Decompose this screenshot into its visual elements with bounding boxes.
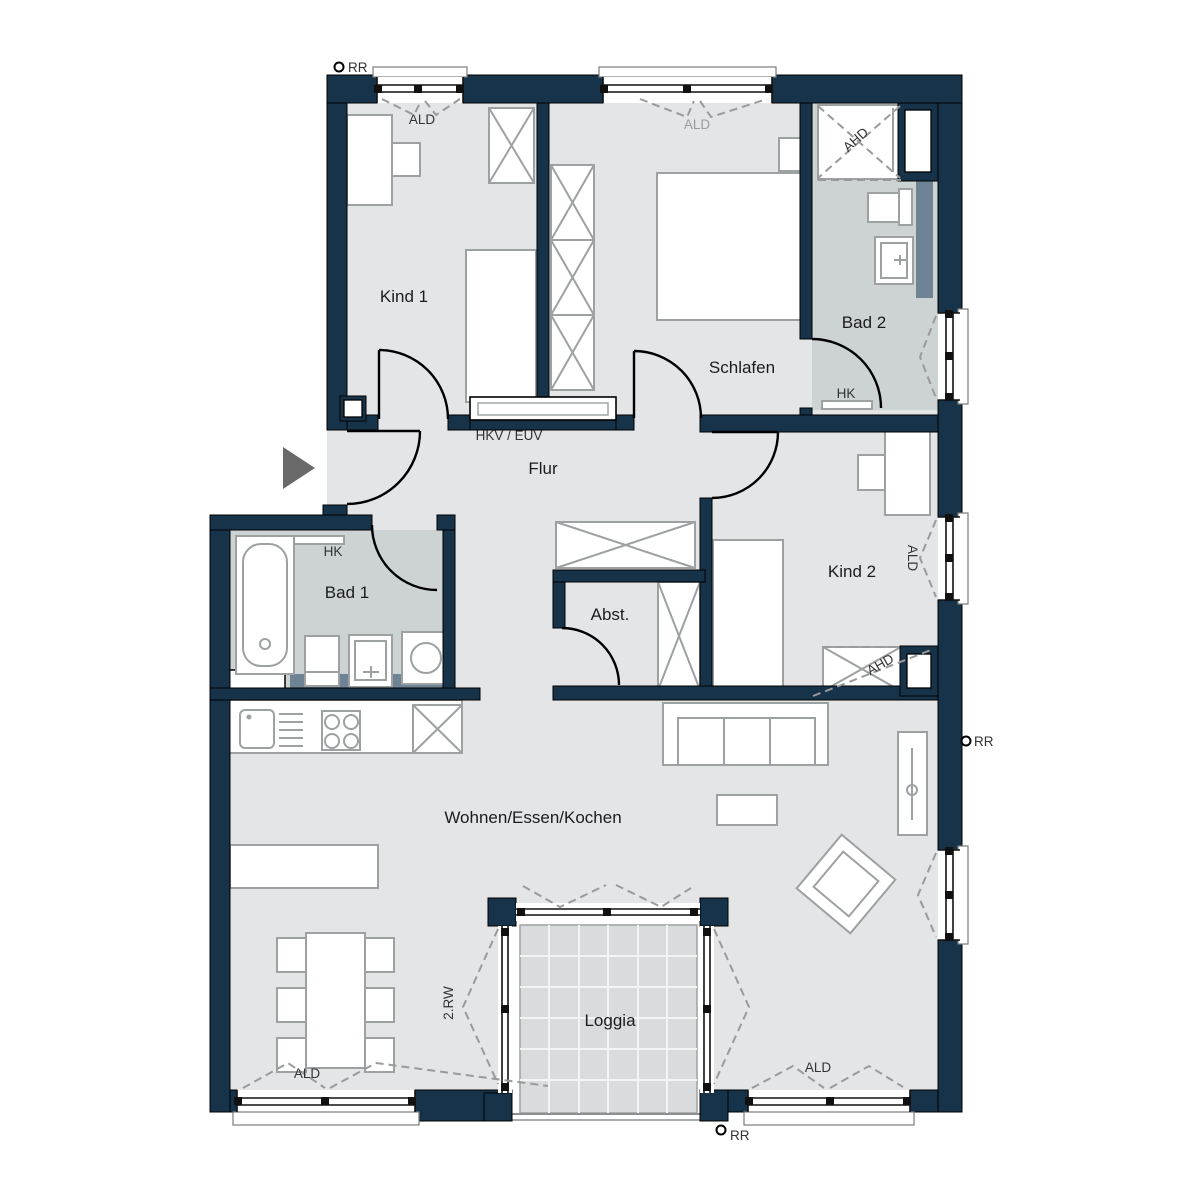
floor-plan-page: Kind 1 Schlafen Bad 2 Flur Bad 1 Abst. K…: [0, 0, 1200, 1200]
wall-right-1: [938, 103, 962, 313]
duct-flur: [344, 400, 362, 417]
rr-marker-top-icon: [335, 63, 344, 72]
wall-abst-west: [553, 582, 565, 628]
rr-marker-bottom-icon: [717, 1126, 726, 1135]
room-label-bad1: Bad 1: [325, 583, 369, 602]
kitchen-island: [230, 845, 378, 888]
dining-chair-4: [365, 938, 394, 972]
window-kind1: [373, 67, 467, 103]
dining-chair-5: [365, 988, 394, 1022]
wall-flur-north-2: [448, 415, 470, 430]
loggia-post-se: [700, 1090, 728, 1121]
label-rr-right: RR: [974, 734, 994, 749]
bed-kind2: [713, 540, 783, 688]
wall-right-2: [938, 400, 962, 517]
room-label-bad2: Bad 2: [842, 313, 886, 332]
coffee-table: [717, 795, 777, 825]
desk-kind2: [885, 428, 930, 515]
wall-flur-north-3: [616, 415, 634, 430]
wall-bad1-east: [443, 530, 455, 695]
loggia-post-nw: [488, 898, 516, 926]
radiator-bad2: [822, 401, 872, 409]
chair-kind1: [392, 143, 420, 176]
hkv-euv-niche: [470, 397, 616, 420]
wall-left-upper: [327, 103, 347, 430]
label-ald-bottom-left: ALD: [294, 1066, 321, 1081]
label-ald-schlafen: ALD: [684, 117, 711, 132]
dining-table: [306, 933, 365, 1068]
loggia-glass-right: [700, 926, 714, 1093]
label-ald-kind1: ALD: [409, 112, 436, 127]
wall-flur-kind2: [700, 498, 712, 700]
label-ald-kind2: ALD: [905, 545, 920, 572]
furniture-dining: [277, 933, 394, 1072]
label-ald-bottom-right: ALD: [805, 1060, 832, 1075]
label-rr-bottom: RR: [730, 1128, 750, 1143]
wall-abst-kind2-south: [553, 686, 938, 700]
window-bottom-right: [744, 1090, 914, 1125]
room-label-loggia: Loggia: [584, 1011, 636, 1030]
wall-schlafen-bad2-upper: [800, 103, 812, 339]
wall-top-3: [772, 75, 962, 103]
double-bed-schlafen: [657, 173, 805, 320]
entry-arrow-icon: [283, 447, 315, 489]
label-hk-bad1: HK: [324, 544, 343, 559]
window-kind1-sill: [373, 67, 467, 77]
room-label-abst: Abst.: [591, 605, 630, 624]
sofa: [663, 703, 828, 765]
label-escape-route: 2.RW: [441, 986, 456, 1020]
desk-kind1: [347, 115, 392, 205]
bed-kind1: [466, 250, 536, 402]
wall-kind2-north: [700, 415, 938, 432]
room-label-kind2: Kind 2: [828, 562, 876, 581]
kitchen-sink-tap: [247, 715, 252, 720]
wall-top-2: [463, 75, 603, 103]
window-bottom-right-sill: [744, 1112, 914, 1125]
window-bottom-left-sill: [233, 1112, 419, 1125]
prewall-bad2: [916, 178, 933, 298]
wall-top-1: [327, 75, 377, 103]
wall-left-lower: [210, 530, 230, 1112]
label-rr-top: RR: [348, 60, 368, 75]
wall-bad1-south: [210, 688, 480, 700]
radiator-bad1: [294, 536, 344, 544]
window-schlafen: [599, 67, 776, 103]
room-label-schlafen: Schlafen: [709, 358, 775, 377]
window-kind2: [938, 513, 968, 604]
wall-abst-north: [553, 570, 705, 582]
window-bad2: [938, 309, 968, 404]
wall-bad1-top-left: [210, 515, 372, 530]
loggia-glass-left: [498, 926, 512, 1093]
room-label-wohnen: Wohnen/Essen/Kochen: [444, 808, 621, 827]
window-bottom-left: [233, 1090, 419, 1125]
loggia-post-sw: [484, 1093, 512, 1121]
wall-kind1-schlafen: [537, 103, 549, 430]
wall-right-3: [938, 600, 962, 850]
label-hk-bad2: HK: [837, 386, 856, 401]
shaft-kind2: [907, 654, 931, 688]
wc-bad2: [868, 193, 900, 222]
window-wohnen: [938, 846, 968, 944]
window-schlafen-sill: [599, 67, 776, 77]
loggia-post-ne: [700, 898, 728, 926]
wc-tank-bad2: [899, 189, 912, 225]
label-hkv-euv: HKV / EUV: [476, 428, 543, 443]
chair-kind2: [858, 455, 885, 490]
wc-bad1: [305, 636, 339, 686]
room-label-kind1: Kind 1: [380, 287, 428, 306]
wall-bad1-top-right: [437, 515, 455, 530]
dining-chair-2: [277, 988, 306, 1022]
loggia-door-glazing: [516, 903, 700, 921]
rr-marker-right-icon: [962, 737, 971, 746]
wall-right-4: [938, 940, 962, 1112]
room-label-flur: Flur: [528, 459, 558, 478]
dining-chair-1: [277, 938, 306, 972]
shaft-bad2: [905, 110, 931, 172]
floor-plan-drawing: Kind 1 Schlafen Bad 2 Flur Bad 1 Abst. K…: [0, 0, 1200, 1200]
